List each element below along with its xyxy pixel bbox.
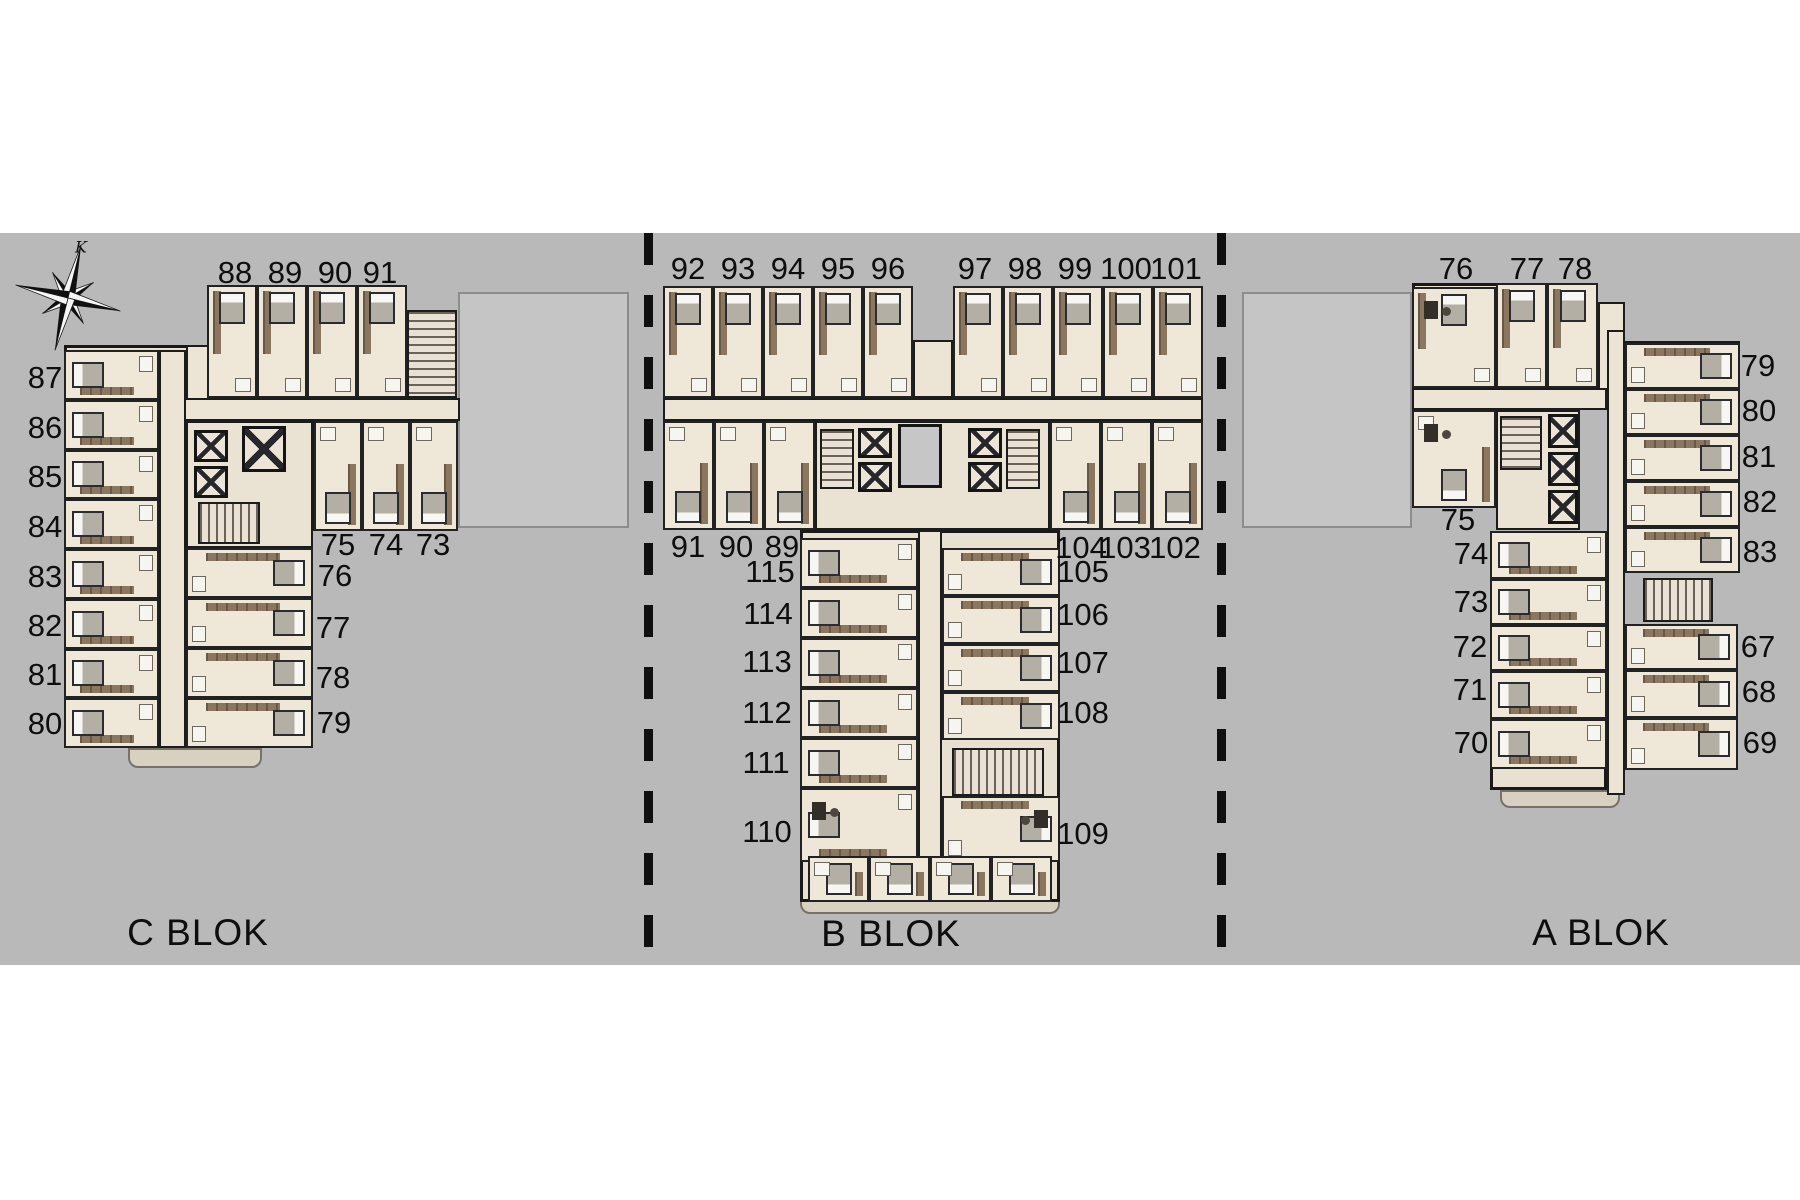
room-number-label: 94 [771, 251, 805, 287]
wardrobe-strip [80, 636, 135, 644]
bed-icon [1700, 399, 1732, 425]
bathroom-pod [898, 594, 912, 610]
bed-icon [1020, 703, 1052, 729]
bed-icon [1498, 731, 1530, 757]
bed-icon [273, 660, 305, 686]
bed-icon [1115, 293, 1141, 325]
wardrobe-strip [855, 872, 863, 896]
room-number-label: 105 [1057, 554, 1109, 590]
bathroom-pod [139, 704, 153, 720]
bathroom-pod [1631, 696, 1645, 712]
room-number-label: 83 [1743, 534, 1777, 570]
wardrobe-strip [819, 625, 887, 633]
bed-icon [72, 710, 104, 736]
room-number-label: 86 [28, 410, 62, 446]
wardrobe-strip [80, 536, 135, 544]
bathroom-pod [139, 356, 153, 372]
bed-icon [1700, 491, 1732, 517]
wardrobe-strip [206, 603, 280, 611]
bathroom-pod [1031, 378, 1047, 392]
room-number-label: 85 [28, 459, 62, 495]
bathroom-pod [898, 794, 912, 810]
room-unit [813, 286, 863, 398]
bathroom-pod [1631, 551, 1645, 567]
bathroom-pod [335, 378, 351, 392]
bed-icon [1015, 293, 1041, 325]
wardrobe-strip [206, 653, 280, 661]
bed-icon [808, 600, 840, 626]
room-number-label: 76 [1439, 251, 1473, 287]
bathroom-pod [741, 378, 757, 392]
wardrobe-strip [206, 703, 280, 711]
room-number-label: 80 [28, 706, 62, 742]
room-number-label: 82 [28, 608, 62, 644]
wardrobe-strip [819, 575, 887, 583]
bathroom-pod [320, 427, 336, 441]
bathroom-pod [1631, 748, 1645, 764]
bathroom-pod [1131, 378, 1147, 392]
room-unit [1547, 283, 1598, 388]
elevator [968, 428, 1002, 458]
bed-icon [1700, 537, 1732, 563]
bed-icon [219, 292, 245, 324]
bathroom-pod [875, 862, 891, 876]
room-unit [357, 285, 407, 398]
room-unit [64, 599, 159, 649]
wardrobe-strip [819, 675, 887, 683]
room-unit [1625, 389, 1740, 435]
bed-icon [273, 710, 305, 736]
bed-icon [1020, 655, 1052, 681]
chair-icon [1442, 307, 1451, 316]
room-unit [663, 421, 714, 530]
bathroom-pod [936, 862, 952, 876]
room-number-label: 112 [742, 695, 791, 731]
room-number-label: 74 [369, 527, 403, 563]
room-unit [186, 648, 313, 698]
elevator [242, 426, 286, 472]
room-unit [1625, 670, 1738, 718]
corridor [913, 340, 953, 398]
bathroom-pod [1181, 378, 1197, 392]
bed-icon [72, 461, 104, 487]
room-number-label: 76 [318, 558, 352, 594]
room-number-label: 70 [1454, 725, 1488, 761]
elevator [194, 466, 228, 498]
bed-icon [72, 511, 104, 537]
room-unit [930, 856, 991, 902]
room-unit [1625, 343, 1740, 389]
bathroom-pod [139, 456, 153, 472]
bathroom-pod [814, 862, 830, 876]
room-number-label: 97 [958, 251, 992, 287]
room-unit [362, 421, 410, 531]
bed-icon [965, 293, 991, 325]
bathroom-pod [1587, 585, 1601, 601]
room-unit [1490, 719, 1607, 769]
desk-icon [1424, 424, 1438, 442]
wardrobe-strip [961, 801, 1029, 809]
room-number-label: 71 [1453, 672, 1487, 708]
wardrobe-strip [1509, 756, 1577, 764]
chair-icon [830, 808, 839, 817]
room-number-label: 109 [1057, 816, 1109, 852]
corridor [918, 530, 942, 892]
room-number-label: 99 [1058, 251, 1092, 287]
bed-icon [1165, 293, 1191, 325]
room-unit [1103, 286, 1153, 398]
bed-icon [808, 550, 840, 576]
bed-icon [1700, 445, 1732, 471]
bathroom-pod [669, 427, 685, 441]
room-number-label: 72 [1453, 629, 1487, 665]
bathroom-pod [1587, 677, 1601, 693]
staircase [1006, 429, 1040, 489]
light-shaft [898, 424, 942, 488]
room-number-label: 69 [1743, 725, 1777, 761]
room-unit [1625, 718, 1738, 770]
wardrobe-strip [80, 685, 135, 693]
bed-icon [421, 492, 447, 524]
wardrobe-strip [206, 553, 280, 561]
staircase [820, 429, 854, 489]
bathroom-pod [285, 378, 301, 392]
bed-icon [1498, 682, 1530, 708]
room-unit [1490, 625, 1607, 671]
room-number-label: 88 [218, 255, 252, 291]
room-unit [800, 588, 918, 638]
room-unit [307, 285, 357, 398]
bed-icon [269, 292, 295, 324]
room-number-label: 81 [28, 657, 62, 693]
room-number-label: 100 [1100, 251, 1152, 287]
room-number-label: 102 [1149, 530, 1201, 566]
room-unit [953, 286, 1003, 398]
desk-icon [1034, 810, 1048, 828]
room-number-label: 68 [1742, 674, 1776, 710]
bed-icon [775, 293, 801, 325]
bathroom-pod [948, 574, 962, 590]
suite-unit [942, 796, 1060, 862]
bed-icon [1498, 635, 1530, 661]
chair-icon [1021, 816, 1030, 825]
bed-icon [1020, 607, 1052, 633]
room-number-label: 73 [416, 527, 450, 563]
bathroom-pod [1631, 648, 1645, 664]
bathroom-pod [192, 626, 206, 642]
bed-icon [825, 293, 851, 325]
bathroom-pod [1081, 378, 1097, 392]
bed-icon [808, 750, 840, 776]
room-unit [64, 450, 159, 500]
room-number-label: 89 [268, 255, 302, 291]
bathroom-pod [1056, 427, 1072, 441]
bathroom-pod [1158, 427, 1174, 441]
bathroom-pod [235, 378, 251, 392]
corridor [1412, 388, 1607, 410]
room-unit [942, 596, 1060, 644]
room-number-label: 83 [28, 559, 62, 595]
balcony [128, 748, 262, 768]
bed-icon [675, 293, 701, 325]
bed-icon [1063, 491, 1089, 523]
room-number-label: 113 [742, 644, 791, 680]
elevator [194, 430, 228, 462]
room-unit [1625, 435, 1740, 481]
bed-icon [726, 491, 752, 523]
room-unit [991, 856, 1052, 902]
room-unit [1625, 527, 1740, 573]
bathroom-pod [368, 427, 384, 441]
room-unit [1053, 286, 1103, 398]
suite-unit [1412, 410, 1496, 508]
elevator [968, 462, 1002, 492]
bed-icon [725, 293, 751, 325]
chair-icon [1442, 430, 1451, 439]
room-number-label: 67 [1741, 629, 1775, 665]
room-unit [1490, 671, 1607, 719]
bed-icon [1165, 491, 1191, 523]
bed-icon [777, 491, 803, 523]
room-unit [800, 538, 918, 588]
room-number-label: 79 [1741, 348, 1775, 384]
block-label: B BLOK [821, 913, 961, 955]
desk-icon [812, 802, 826, 820]
wardrobe-strip [80, 387, 135, 395]
bathroom-pod [948, 718, 962, 734]
room-number-label: 74 [1454, 536, 1488, 572]
staircase [407, 310, 457, 398]
room-unit [1490, 531, 1607, 579]
bathroom-pod [385, 378, 401, 392]
bathroom-pod [898, 644, 912, 660]
bathroom-pod [192, 576, 206, 592]
room-unit [1003, 286, 1053, 398]
bed-icon [875, 293, 901, 325]
staircase [1643, 578, 1713, 622]
room-number-label: 98 [1008, 251, 1042, 287]
bed-icon [72, 611, 104, 637]
room-unit [714, 421, 765, 530]
bed-icon [1509, 290, 1535, 322]
bathroom-pod [898, 544, 912, 560]
bathroom-pod [1631, 459, 1645, 475]
elevator [858, 428, 892, 458]
room-unit [800, 738, 918, 788]
site-plan-canvas: 8889909187868584838281807677787975747392… [0, 0, 1800, 1200]
room-unit [1153, 286, 1203, 398]
room-unit [663, 286, 713, 398]
bathroom-pod [192, 676, 206, 692]
bathroom-pod [1587, 537, 1601, 553]
wardrobe-strip [80, 437, 135, 445]
wardrobe-strip [1643, 723, 1708, 731]
wardrobe-strip [977, 872, 985, 896]
room-unit [1050, 421, 1101, 530]
bed-icon [1020, 559, 1052, 585]
room-number-label: 82 [1743, 484, 1777, 520]
bathroom-pod [691, 378, 707, 392]
bed-icon [319, 292, 345, 324]
staircase [952, 748, 1044, 796]
bed-icon [1700, 353, 1732, 379]
room-number-label: 101 [1150, 251, 1202, 287]
bathroom-pod [139, 505, 153, 521]
bed-icon [369, 292, 395, 324]
bed-icon [1065, 293, 1091, 325]
bed-icon [325, 492, 351, 524]
compass-rose-icon [8, 238, 128, 358]
room-unit [64, 649, 159, 699]
room-unit [410, 421, 458, 531]
bathroom-pod [1631, 413, 1645, 429]
bathroom-pod [1631, 367, 1645, 383]
room-unit [863, 286, 913, 398]
room-number-label: 81 [1742, 439, 1776, 475]
room-number-label: 110 [742, 814, 791, 850]
room-unit [942, 692, 1060, 740]
room-unit [64, 549, 159, 599]
bathroom-pod [898, 694, 912, 710]
bed-icon [72, 660, 104, 686]
balcony [1500, 790, 1620, 808]
room-number-label: 75 [321, 527, 355, 563]
bed-icon [1441, 469, 1467, 501]
corridor [1607, 330, 1625, 795]
room-number-label: 115 [745, 554, 794, 590]
room-unit [800, 638, 918, 688]
room-unit [64, 400, 159, 450]
room-number-label: 114 [743, 596, 792, 632]
bed-icon [273, 610, 305, 636]
elevator [1548, 490, 1578, 524]
bathroom-pod [1631, 505, 1645, 521]
courtyard-void [458, 292, 629, 528]
room-unit [713, 286, 763, 398]
bathroom-pod [1107, 427, 1123, 441]
corridor [159, 350, 186, 748]
room-unit [64, 698, 159, 748]
floorplan-drawing: 8889909187868584838281807677787975747392… [0, 0, 1800, 1200]
room-number-label: 95 [821, 251, 855, 287]
block-label: A BLOK [1532, 912, 1670, 954]
room-unit [1152, 421, 1203, 530]
room-number-label: 91 [363, 255, 397, 291]
room-unit [186, 598, 313, 648]
room-unit [64, 499, 159, 549]
room-unit [764, 421, 815, 530]
room-number-label: 73 [1454, 584, 1488, 620]
bed-icon [72, 561, 104, 587]
room-unit [763, 286, 813, 398]
bathroom-pod [898, 744, 912, 760]
room-number-label: 77 [316, 610, 350, 646]
wardrobe-strip [80, 586, 135, 594]
bathroom-pod [139, 655, 153, 671]
compass-north-label: K [75, 238, 87, 257]
bed-icon [1560, 290, 1586, 322]
bathroom-pod [139, 605, 153, 621]
bathroom-pod [139, 406, 153, 422]
room-number-label: 96 [871, 251, 905, 287]
room-number-label: 87 [28, 360, 62, 396]
room-unit [207, 285, 257, 398]
room-unit [257, 285, 307, 398]
bathroom-pod [770, 427, 786, 441]
bathroom-pod [841, 378, 857, 392]
bathroom-pod [948, 622, 962, 638]
room-number-label: 79 [317, 705, 351, 741]
staircase [198, 502, 260, 544]
elevator [1548, 452, 1578, 486]
bathroom-pod [1587, 725, 1601, 741]
bathroom-pod [1525, 368, 1541, 382]
corridor [663, 398, 1203, 421]
wardrobe-strip [916, 872, 924, 896]
bathroom-pod [997, 862, 1013, 876]
wardrobe-strip [1038, 872, 1046, 896]
wardrobe-strip [819, 775, 887, 783]
room-number-label: 90 [318, 255, 352, 291]
room-number-label: 91 [671, 529, 705, 565]
room-number-label: 93 [721, 251, 755, 287]
staircase [1500, 416, 1542, 470]
wardrobe-strip [80, 735, 135, 743]
room-unit [1101, 421, 1152, 530]
bed-icon [1698, 634, 1730, 660]
room-number-label: 80 [1742, 393, 1776, 429]
bed-icon [675, 491, 701, 523]
room-unit [1490, 579, 1607, 625]
bed-icon [1498, 589, 1530, 615]
bathroom-pod [1587, 631, 1601, 647]
bathroom-pod [948, 840, 962, 856]
corridor [155, 398, 460, 421]
room-unit [808, 856, 869, 902]
wardrobe-strip [80, 486, 135, 494]
bathroom-pod [1474, 368, 1490, 382]
room-number-label: 77 [1510, 251, 1544, 287]
bed-icon [1698, 681, 1730, 707]
bed-icon [1498, 542, 1530, 568]
wardrobe-strip [819, 725, 887, 733]
bathroom-pod [981, 378, 997, 392]
room-number-label: 75 [1441, 502, 1475, 538]
room-unit [869, 856, 930, 902]
bed-icon [72, 362, 104, 388]
bed-icon [273, 560, 305, 586]
bed-icon [808, 700, 840, 726]
elevator [1548, 414, 1578, 448]
suite-unit [800, 788, 918, 862]
room-number-label: 108 [1057, 695, 1109, 731]
room-unit [800, 688, 918, 738]
wardrobe-strip [1482, 447, 1490, 502]
courtyard-void [1242, 292, 1412, 528]
room-number-label: 111 [742, 745, 789, 781]
room-number-label: 106 [1057, 597, 1109, 633]
bed-icon [1114, 491, 1140, 523]
bed-icon [373, 492, 399, 524]
room-unit [942, 548, 1060, 596]
room-unit [1496, 283, 1547, 388]
bathroom-pod [948, 670, 962, 686]
room-unit [942, 644, 1060, 692]
block-label: C BLOK [127, 912, 269, 954]
elevator [858, 462, 892, 492]
room-unit [314, 421, 362, 531]
bathroom-pod [1576, 368, 1592, 382]
